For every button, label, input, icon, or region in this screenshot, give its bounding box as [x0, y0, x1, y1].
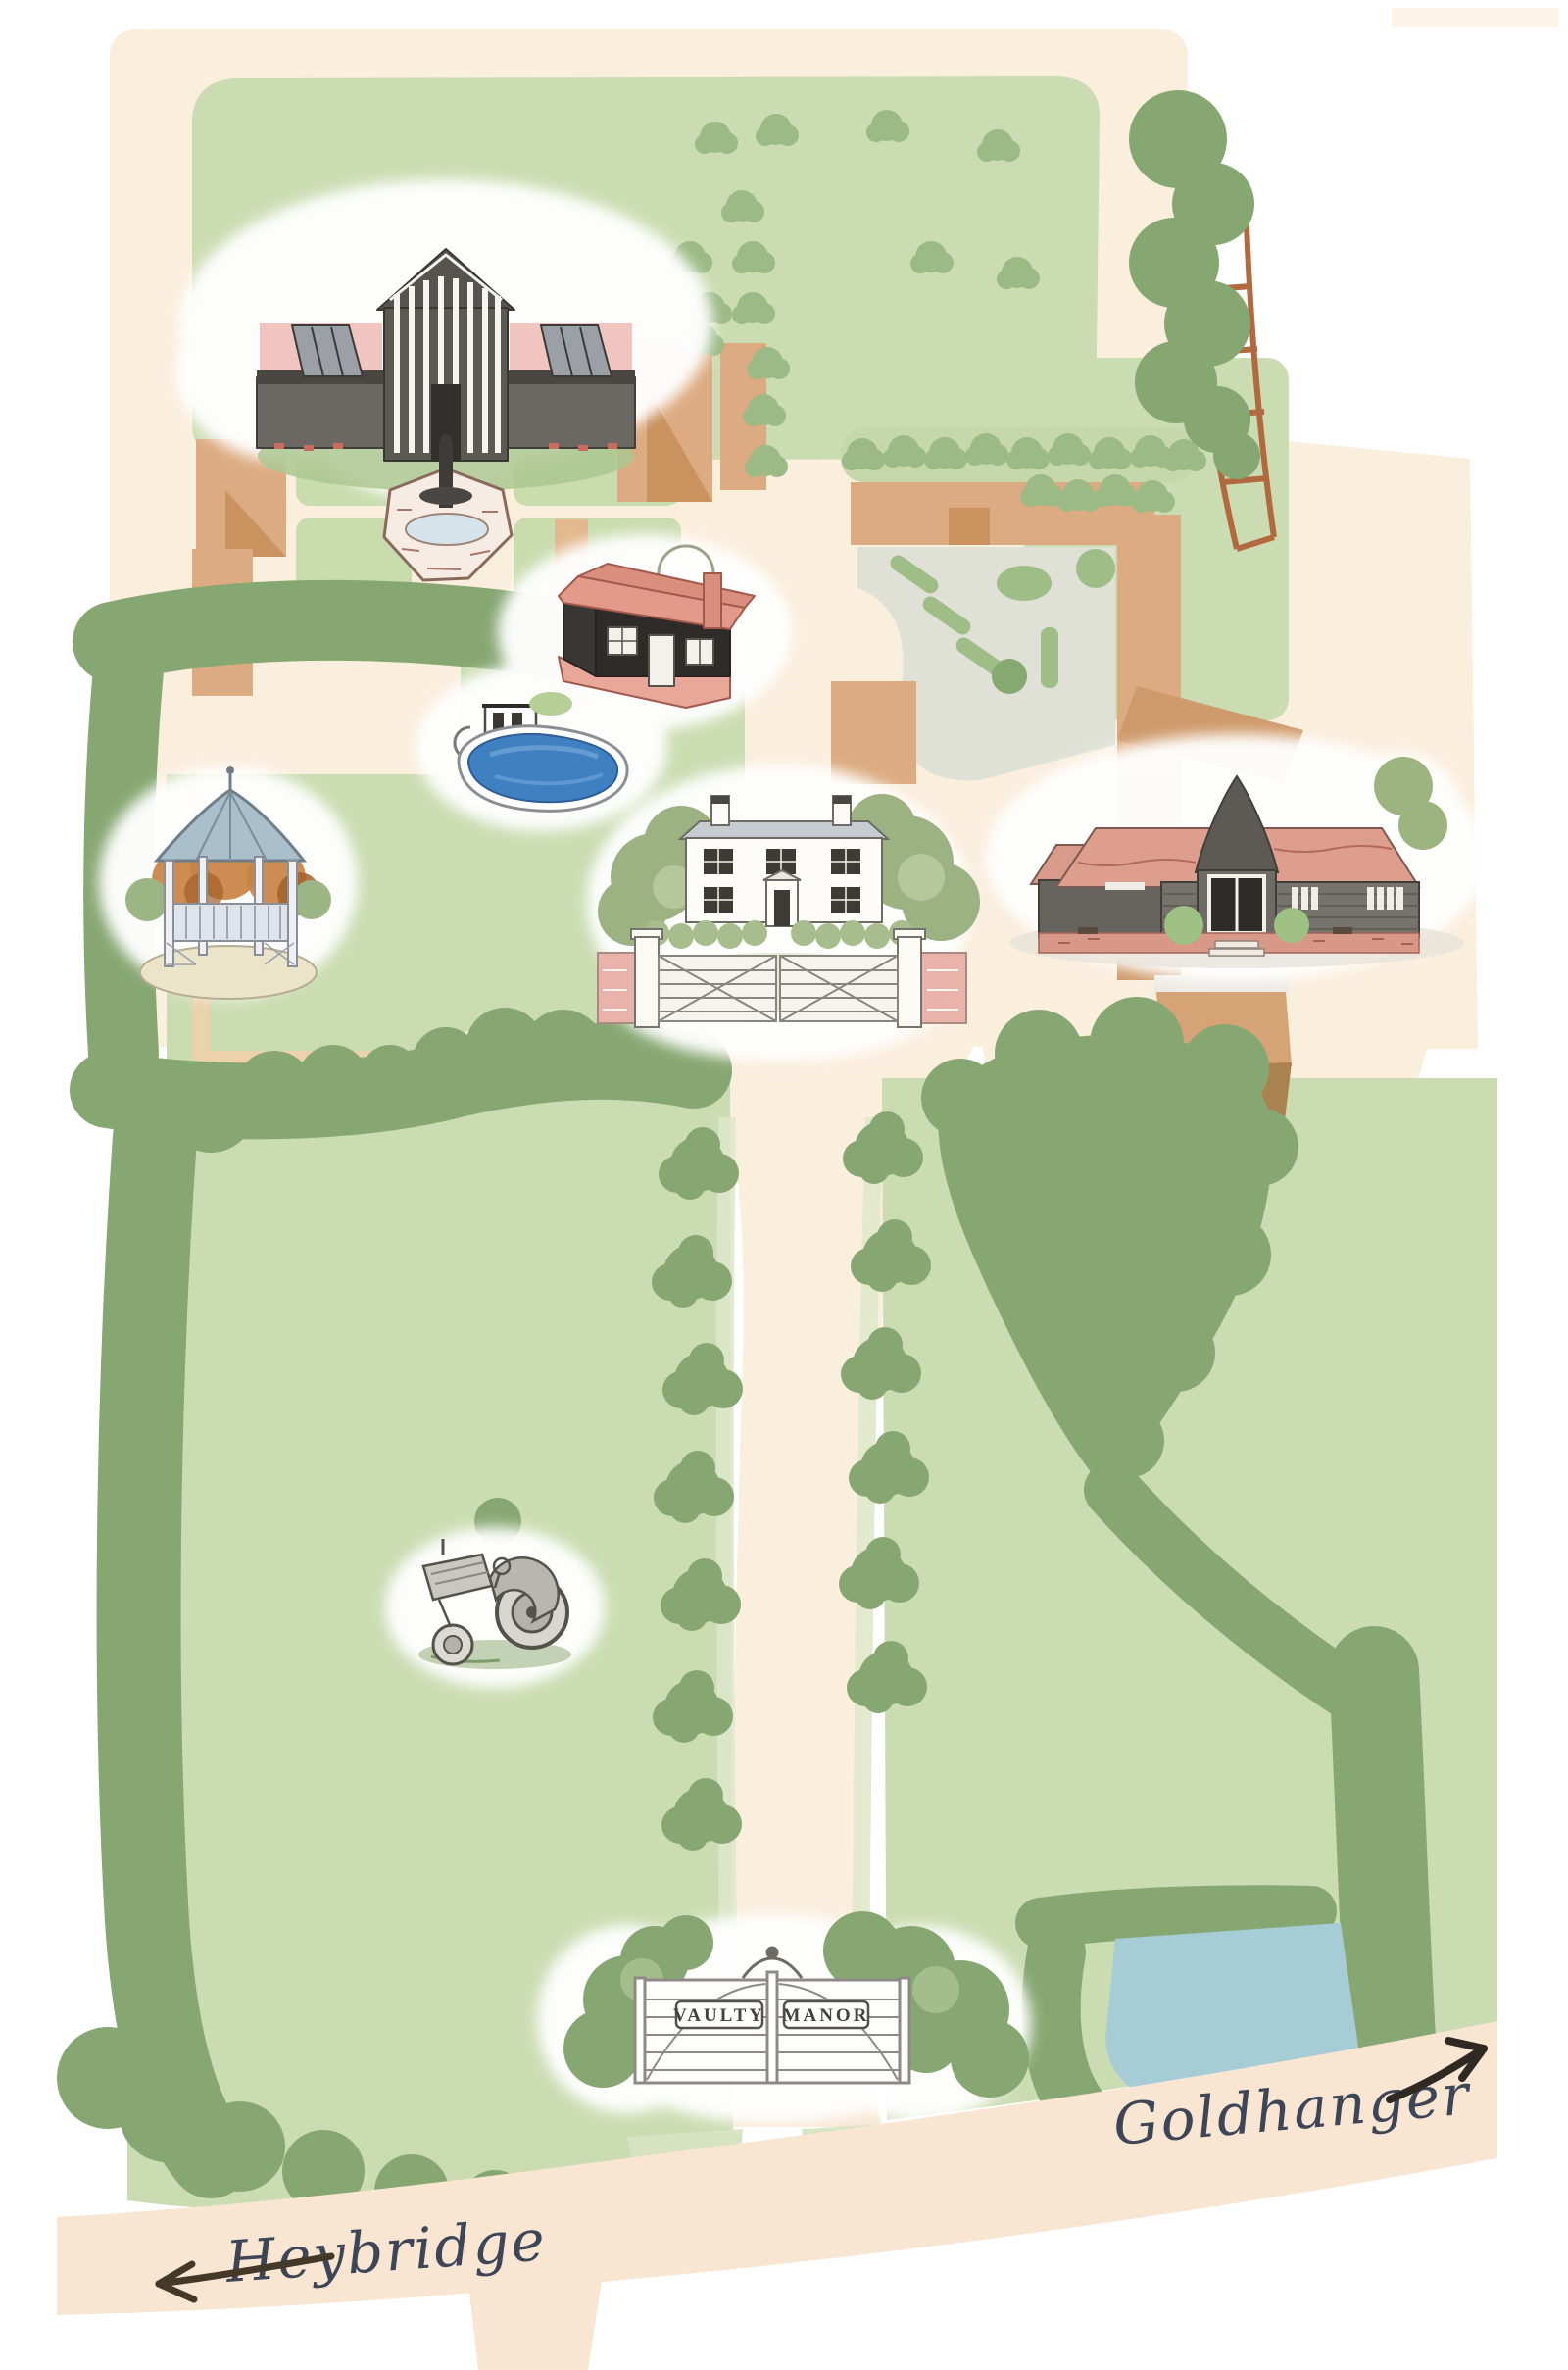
- gazebo-railing: [173, 904, 288, 941]
- manor-house-and-gates-illustration: [598, 794, 980, 1027]
- vaulty-manor-map: VAULTY MANOR Heybridge Goldhanger: [0, 0, 1568, 2370]
- gate-sign-right-text: MANOR: [783, 2005, 870, 2026]
- road-branch-south: [468, 2268, 604, 2370]
- map-artwork: VAULTY MANOR Heybridge Goldhanger: [0, 0, 1568, 2370]
- gate-sign-left-text: VAULTY: [673, 2005, 765, 2026]
- drive-verge-left: [725, 1117, 729, 2000]
